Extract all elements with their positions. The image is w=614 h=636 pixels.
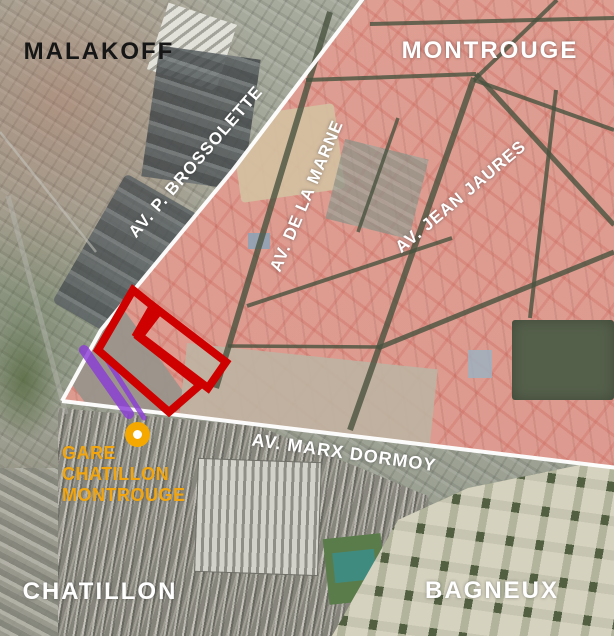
map-canvas: GARE CHATILLON MONTROUGE MALAKOFF MONTRO…	[0, 0, 614, 636]
rail-line-west	[8, 196, 66, 414]
station-label: GARE CHATILLON MONTROUGE	[62, 443, 186, 506]
street-line-jaures	[350, 78, 474, 430]
label-montrouge: MONTROUGE	[402, 37, 579, 65]
street-line	[358, 118, 398, 232]
street-line	[530, 90, 556, 318]
street-line	[378, 252, 614, 348]
station-label-line1: GARE	[62, 443, 186, 464]
label-malakoff: MALAKOFF	[24, 38, 175, 66]
label-bagneux: BAGNEUX	[425, 577, 559, 605]
annotations-svg	[0, 0, 614, 636]
street-line	[474, 80, 614, 130]
label-chatillon: CHATILLON	[23, 578, 178, 606]
minor-road-line	[0, 132, 96, 252]
station-label-line3: MONTROUGE	[62, 485, 186, 506]
street-line	[306, 74, 476, 80]
station-label-line2: CHATILLON	[62, 464, 186, 485]
street-line	[370, 18, 614, 24]
site-outline-secondary	[137, 306, 226, 388]
street-line	[228, 346, 380, 347]
